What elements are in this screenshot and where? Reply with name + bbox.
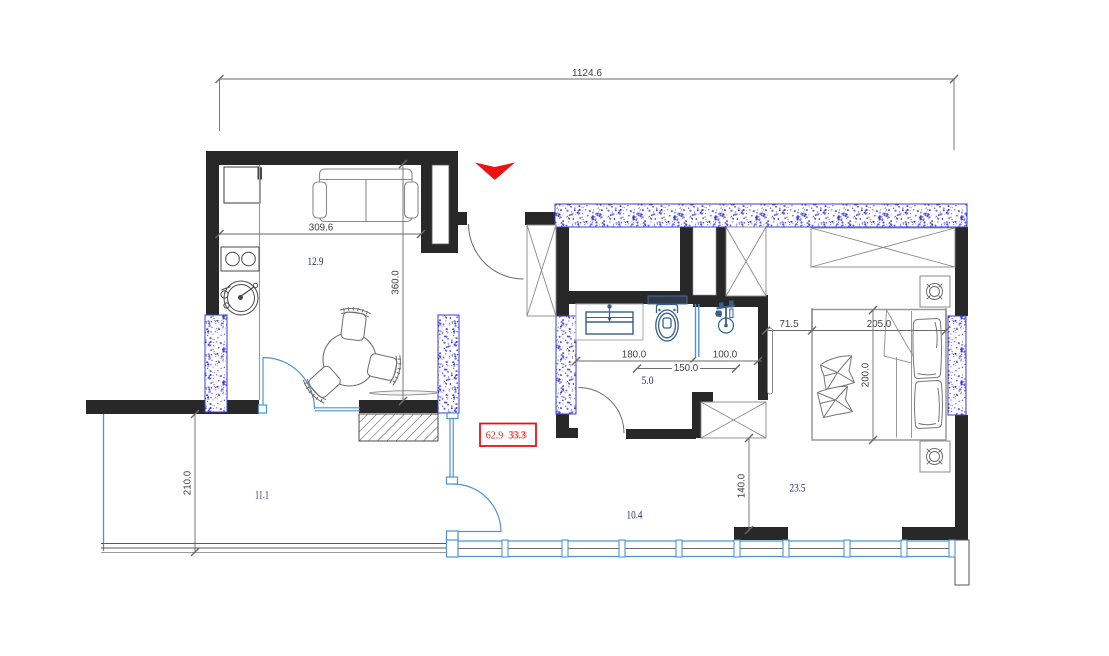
svg-text:180.0: 180.0 xyxy=(622,349,647,361)
svg-text:5.0: 5.0 xyxy=(642,373,654,387)
svg-text:11.1: 11.1 xyxy=(255,488,269,502)
svg-text:23.5: 23.5 xyxy=(790,481,806,495)
svg-text:140.0: 140.0 xyxy=(736,474,748,499)
svg-text:100.0: 100.0 xyxy=(713,349,738,361)
svg-text:10.4: 10.4 xyxy=(627,508,643,522)
svg-text:1124.6: 1124.6 xyxy=(572,67,602,79)
svg-text:33.8: 33.8 xyxy=(510,429,528,441)
svg-text:309.6: 309.6 xyxy=(309,222,334,234)
svg-text:200.0: 200.0 xyxy=(860,363,872,388)
svg-text:150.0: 150.0 xyxy=(674,362,699,374)
svg-text:62.9: 62.9 xyxy=(486,430,504,442)
svg-text:205.0: 205.0 xyxy=(867,318,892,330)
svg-text:12.9: 12.9 xyxy=(308,254,324,268)
svg-text:71.5: 71.5 xyxy=(780,318,799,330)
svg-text:210.0: 210.0 xyxy=(182,471,194,496)
svg-text:360.0: 360.0 xyxy=(390,270,402,295)
